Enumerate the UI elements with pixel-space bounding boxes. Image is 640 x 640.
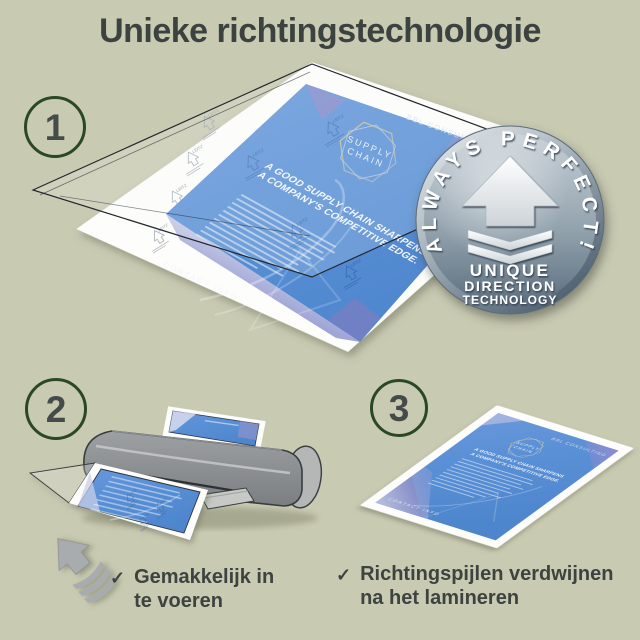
check-icon: ✓ [110, 568, 125, 613]
check-icon: ✓ [336, 565, 351, 610]
badge-line-direction: DIRECTION [464, 278, 555, 294]
caption-easy-feed: ✓ Gemakkelijk in te voeren [110, 566, 274, 613]
caption-line2: te voeren [134, 590, 223, 612]
step3-number: 3 [389, 390, 410, 427]
badge-line-technology: TECHNOLOGY [463, 293, 558, 307]
step2-circle: 2 [25, 378, 87, 440]
page: Unieke richtingstechnologie [0, 0, 640, 640]
caption-line1: Richtingspijlen verdwijnen [360, 563, 613, 585]
direction-arrow-icon [43, 526, 120, 607]
step2-number: 2 [46, 391, 67, 428]
illustration-canvas: LEITZ [0, 0, 640, 640]
caption-line1: Gemakkelijk in [134, 566, 274, 588]
step1-number: 1 [45, 109, 66, 146]
caption-text: Gemakkelijk in te voeren [134, 566, 274, 613]
caption-arrows-disappear: ✓ Richtingspijlen verdwijnen na het lami… [336, 563, 613, 610]
caption-text: Richtingspijlen verdwijnen na het lamine… [360, 563, 613, 610]
step1-circle: 1 [24, 96, 86, 158]
step3-circle: 3 [370, 379, 428, 437]
caption-line2: na het lamineren [360, 587, 519, 609]
always-perfect-badge: ALWAYS PERFECT! UNIQUE DIRECTION TECHNOL… [416, 126, 604, 314]
